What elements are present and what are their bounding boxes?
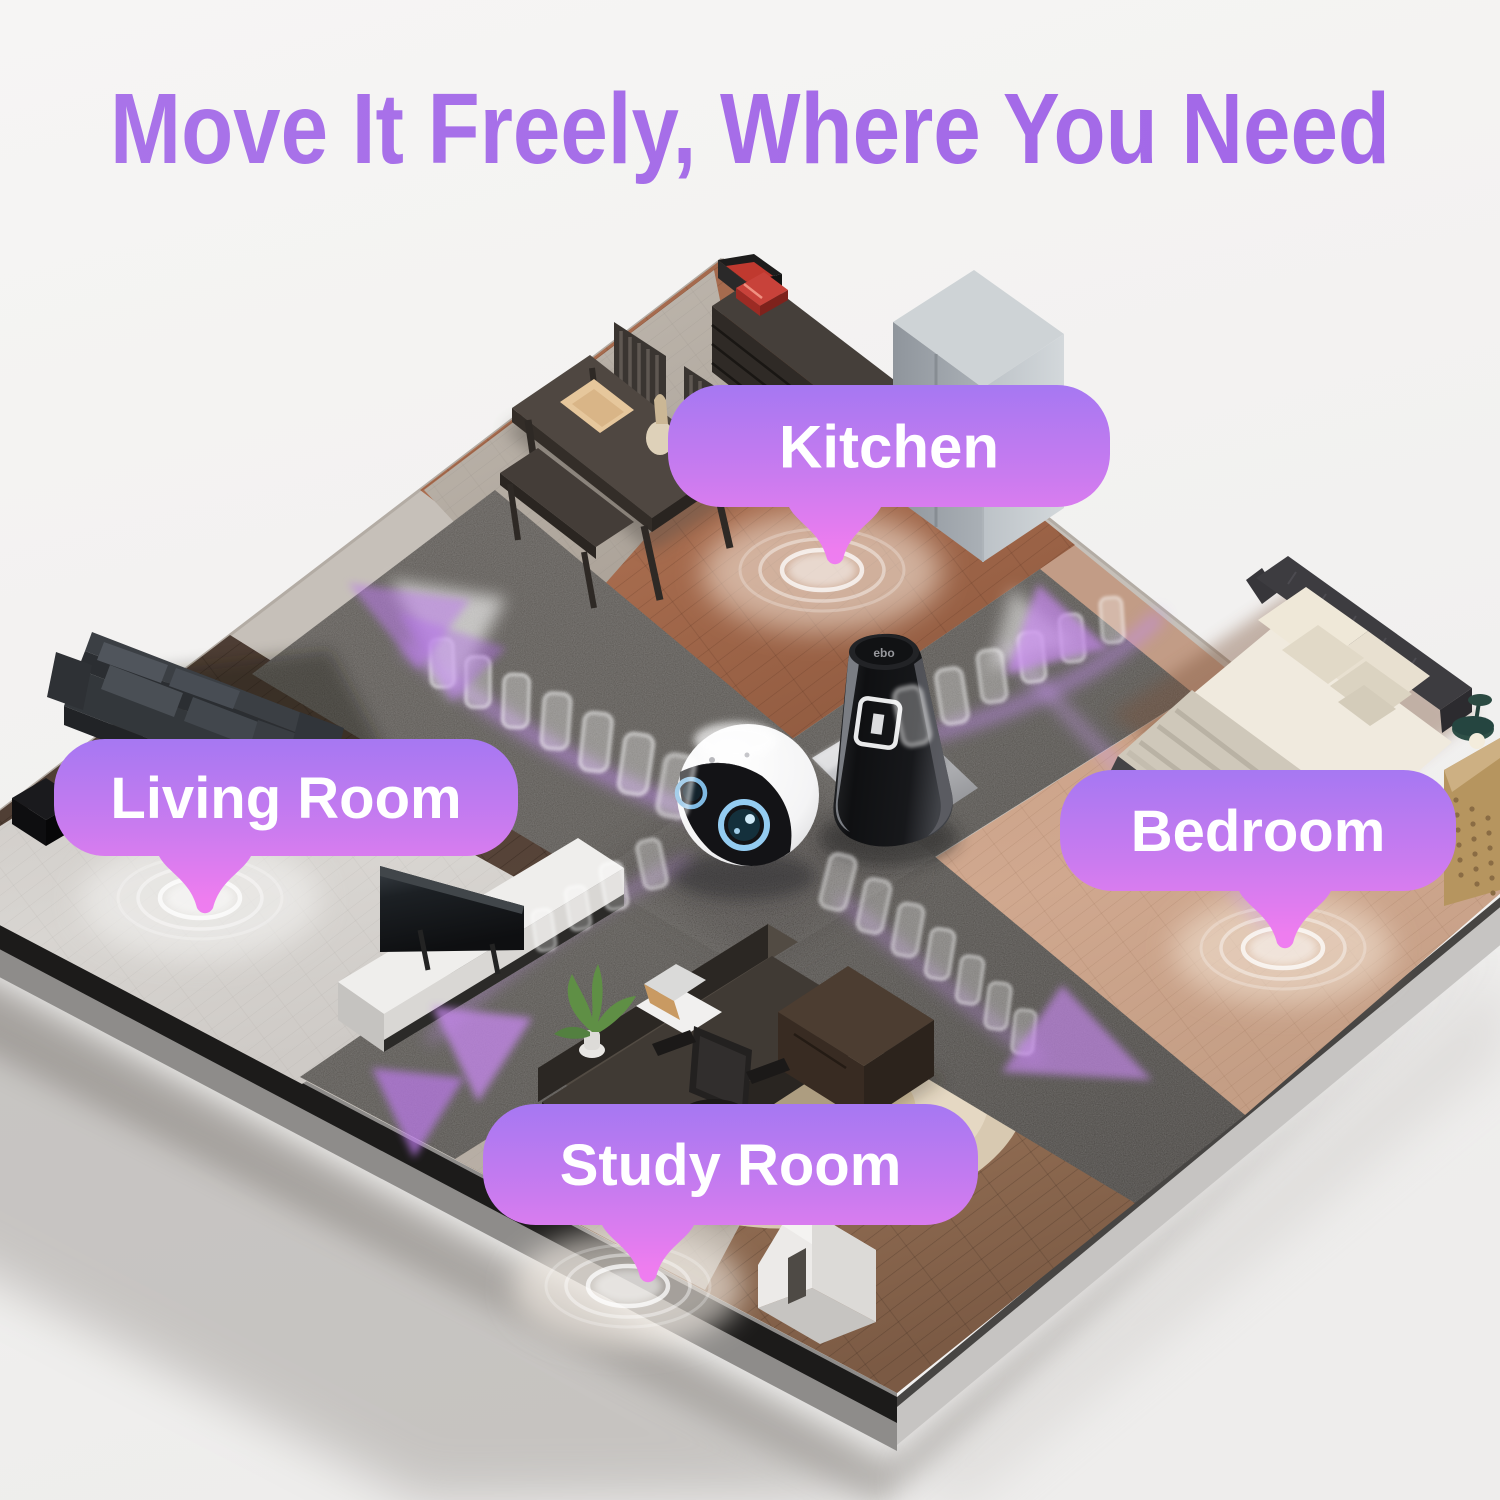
svg-text:Kitchen: Kitchen	[779, 413, 999, 480]
svg-text:Study Room: Study Room	[560, 1133, 902, 1198]
svg-text:Living Room: Living Room	[110, 766, 461, 831]
svg-text:Move It Freely, Where You Need: Move It Freely, Where You Need	[110, 73, 1390, 185]
svg-text:ebo: ebo	[873, 646, 894, 660]
svg-text:Bedroom: Bedroom	[1131, 799, 1386, 864]
